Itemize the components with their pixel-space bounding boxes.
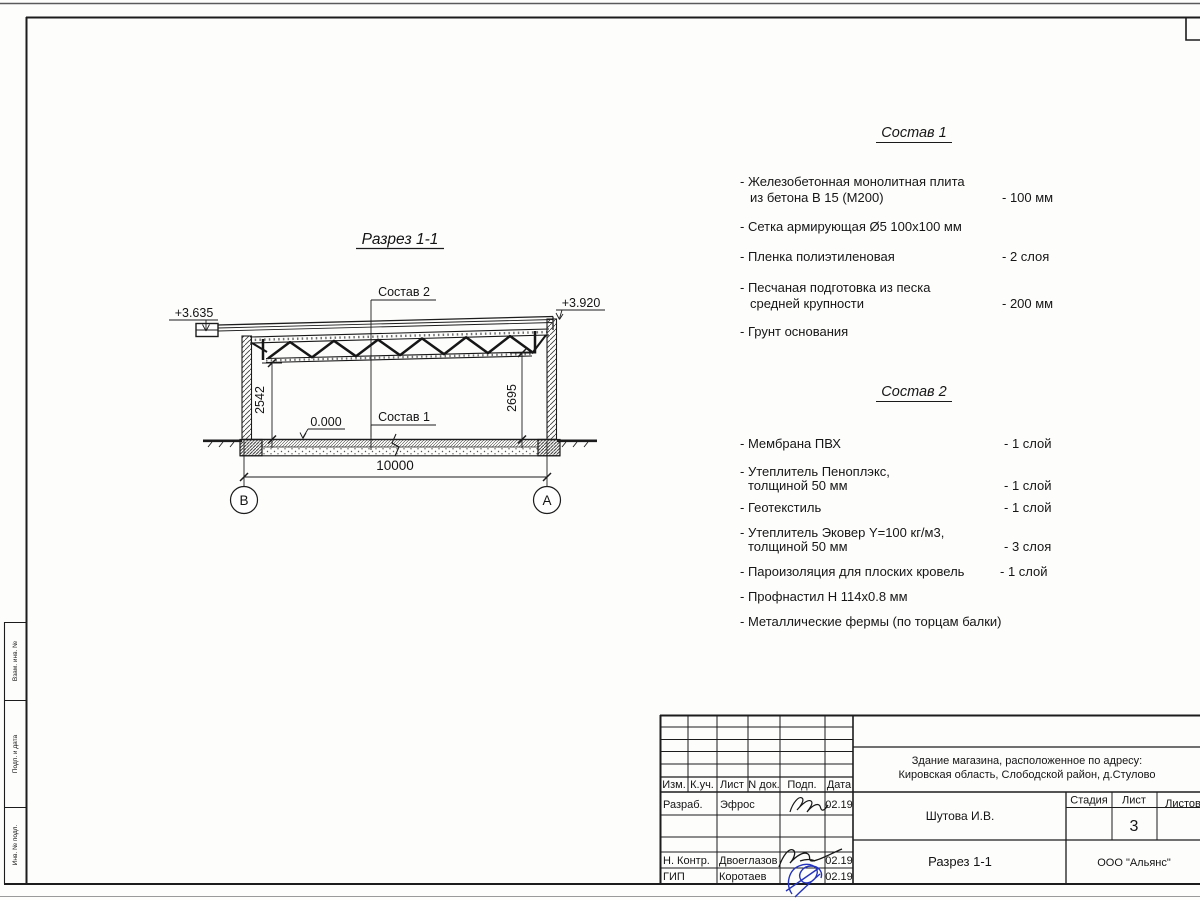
doc-title: Разрез 1-1 <box>928 854 992 869</box>
sheet-label: Лист <box>1122 795 1146 807</box>
composition1-item-value: - 2 слоя <box>1002 249 1049 264</box>
col-kuch: К.уч. <box>690 779 714 791</box>
composition2-item: - Мембрана ПВХ <box>740 436 841 451</box>
author-name: Шутова И.В. <box>926 809 995 823</box>
composition2-title: Состав 2 <box>876 384 952 402</box>
row-gip-date: 02.19 <box>825 871 853 883</box>
drawing-texts: Разрез 1-1 Состав 2 Состав 1 0.000 +3.63… <box>175 231 601 508</box>
composition2-item-value: - 1 слой <box>1004 436 1052 451</box>
row-razrab-role: Разраб. <box>663 799 703 811</box>
row-gip-name: Коротаев <box>719 871 767 883</box>
floor-slab <box>240 434 560 456</box>
composition2-item-line2: толщиной 50 мм <box>748 539 848 554</box>
composition1-title: Состав 1 <box>876 125 952 143</box>
row-nkontr-date: 02.19 <box>825 855 853 867</box>
composition1-item: - Сетка армирующая Ø5 100х100 мм <box>740 219 962 234</box>
dim-height-right-label: 2695 <box>505 384 519 412</box>
composition1-item-value: - 100 мм <box>1002 190 1053 205</box>
section-title: Разрез 1-1 <box>362 231 439 248</box>
company-name: ООО "Альянс" <box>1097 857 1171 869</box>
row-gip-role: ГИП <box>663 871 685 883</box>
composition2-item-line2: толщиной 50 мм <box>748 478 848 493</box>
col-izm: Изм. <box>662 779 686 791</box>
composition2-item: - Профнастил Н 114х0.8 мм <box>740 589 908 604</box>
dim-span-label: 10000 <box>376 458 414 473</box>
col-ndoc: N док. <box>748 779 779 791</box>
col-podp: Подп. <box>787 779 816 791</box>
composition2-item: - Геотекстиль <box>740 500 821 515</box>
row-nkontr-role: Н. Контр. <box>663 855 710 867</box>
row-razrab-date: 02.19 <box>825 799 853 811</box>
axis-left-letter: В <box>239 493 248 508</box>
col-list: Лист <box>720 779 744 791</box>
drawing-sheet: Взам. инв. № Подп. и дата Инв. № подл. <box>0 0 1200 900</box>
signature-gip <box>786 864 822 897</box>
left-margin-labels: Взам. инв. № Подп. и дата Инв. № подл. <box>12 641 19 865</box>
composition2-item: - Пароизоляция для плоских кровель <box>740 564 964 579</box>
axis-right-letter: А <box>542 493 551 508</box>
signature-razrab <box>790 798 828 812</box>
elevation-left-label: +3.635 <box>175 306 214 320</box>
sheets-label: Листов <box>1165 798 1200 810</box>
title-block-texts: Изм. К.уч. Лист N док. Подп. Дата Разраб… <box>662 755 1200 883</box>
sheet-number: 3 <box>1130 818 1139 835</box>
composition1-item-value: - 200 мм <box>1002 296 1053 311</box>
composition2-item-value: - 1 слой <box>1004 478 1052 493</box>
composition2-leader-label: Состав 2 <box>378 285 430 299</box>
stage-label: Стадия <box>1070 795 1108 807</box>
composition2-item: - Утеплитель Пеноплэкс, <box>740 464 890 479</box>
roof-truss <box>250 329 549 363</box>
dim-height-left-label: 2542 <box>253 386 267 414</box>
row-razrab-name: Эфрос <box>720 799 755 811</box>
composition2-item: - Металлические фермы (по торцам балки) <box>740 614 1001 629</box>
row-nkontr-name: Двоеглазов <box>719 855 778 867</box>
col-data: Дата <box>827 779 852 791</box>
composition2-item: - Утеплитель Эковер Y=100 кг/м3, <box>740 525 944 540</box>
composition1-item: - Железобетонная монолитная плита <box>740 174 965 189</box>
composition1-item-line2: из бетона В 15 (М200) <box>750 190 884 205</box>
axis-bubbles <box>231 487 561 514</box>
composition1-item: - Пленка полиэтиленовая <box>740 249 895 264</box>
margin-label-inv: Инв. № подл. <box>12 825 19 866</box>
margin-label-vzam: Взам. инв. № <box>12 641 19 681</box>
project-name-line1: Здание магазина, расположенное по адресу… <box>912 755 1143 767</box>
composition2-item-value: - 3 слоя <box>1004 539 1051 554</box>
composition1-item: - Грунт основания <box>740 324 848 339</box>
project-name-line2: Кировская область, Слободской район, д.С… <box>898 769 1155 781</box>
composition2-item-value: - 1 слой <box>1000 564 1048 579</box>
margin-label-podp: Подп. и дата <box>12 734 19 773</box>
elevation-right-label: +3.920 <box>562 296 601 310</box>
composition1-leader-label: Состав 1 <box>378 410 430 424</box>
composition2-item-value: - 1 слой <box>1004 500 1052 515</box>
composition1-item: - Песчаная подготовка из песка <box>740 280 930 295</box>
level-zero-label: 0.000 <box>310 415 341 429</box>
composition1-item-line2: средней крупности <box>750 296 864 311</box>
